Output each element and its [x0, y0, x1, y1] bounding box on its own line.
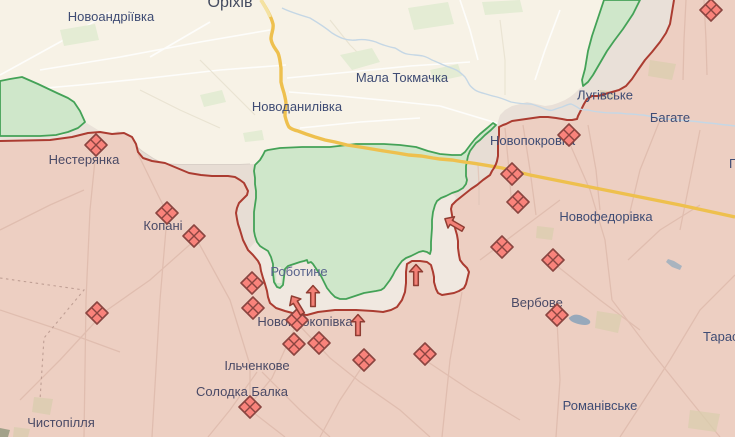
svg-text:Нестерянка: Нестерянка [49, 152, 120, 167]
svg-text:Роботине: Роботине [270, 264, 327, 279]
svg-text:Лугівське: Лугівське [577, 88, 633, 103]
svg-text:Солодка Балка: Солодка Балка [196, 384, 289, 399]
svg-text:Тарасе: Тарасе [703, 329, 735, 344]
svg-text:Романівське: Романівське [563, 398, 638, 413]
svg-text:Чистопілля: Чистопілля [27, 415, 95, 430]
svg-text:Новофедорівка: Новофедорівка [559, 209, 653, 224]
svg-text:Ільченкове: Ільченкове [224, 358, 289, 373]
svg-text:Оріхів: Оріхів [208, 0, 253, 11]
svg-text:Багате: Багате [650, 110, 690, 125]
svg-text:Новоданилівка: Новоданилівка [252, 99, 343, 114]
svg-text:Новоандріївка: Новоандріївка [68, 9, 155, 24]
svg-text:По: По [729, 156, 735, 171]
svg-text:Мала Токмачка: Мала Токмачка [356, 70, 449, 85]
